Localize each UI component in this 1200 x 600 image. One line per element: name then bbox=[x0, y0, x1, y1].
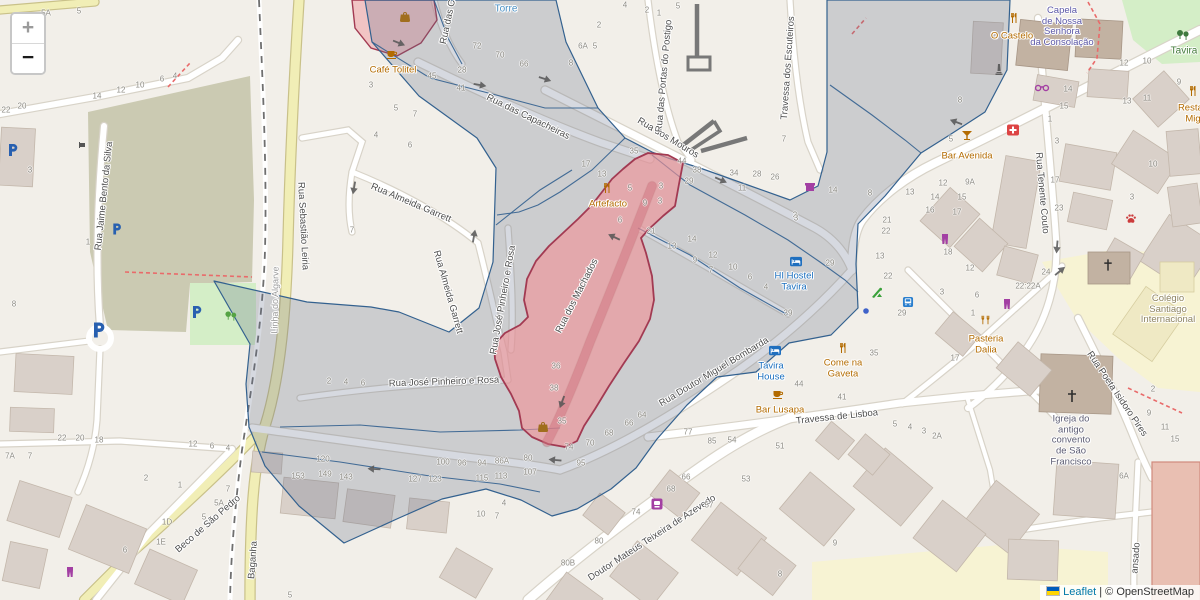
zoom-control: + − bbox=[10, 12, 46, 75]
osm-credit[interactable]: © OpenStreetMap bbox=[1105, 586, 1194, 598]
zoom-out-button[interactable]: − bbox=[12, 43, 44, 73]
ukraine-flag-icon bbox=[1046, 586, 1060, 596]
leaflet-link[interactable]: Leaflet bbox=[1063, 586, 1096, 598]
map-canvas[interactable]: Rua Jaime Bento da SilvaRua Sebastião Le… bbox=[0, 0, 1200, 600]
attribution-bar: Leaflet | © OpenStreetMap bbox=[1040, 585, 1200, 600]
zoom-in-button[interactable]: + bbox=[12, 14, 44, 43]
attribution-separator: | bbox=[1096, 586, 1105, 598]
map-tiles bbox=[0, 0, 1200, 600]
